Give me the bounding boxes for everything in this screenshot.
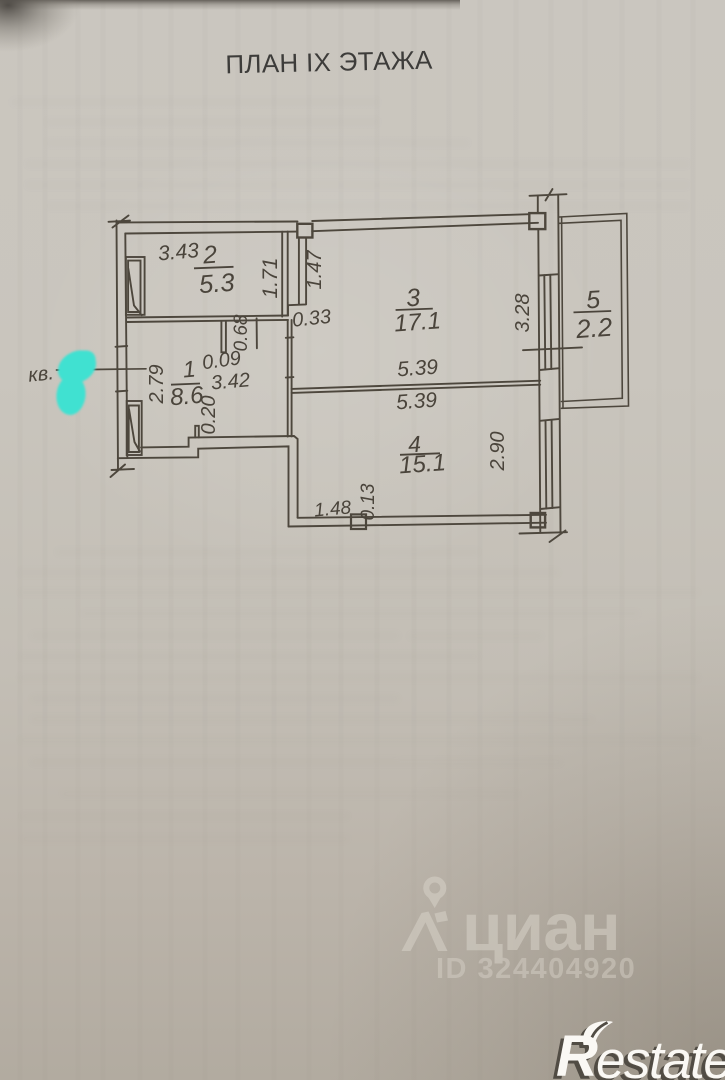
svg-text:1.47: 1.47: [304, 250, 326, 290]
svg-text:R: R: [556, 1024, 598, 1080]
svg-text:estate: estate: [596, 1031, 725, 1080]
svg-text:3.42: 3.42: [210, 369, 251, 394]
svg-text:кв.: кв.: [27, 362, 55, 387]
svg-text:2: 2: [201, 241, 218, 270]
svg-text:1: 1: [182, 355, 197, 382]
svg-text:0.33: 0.33: [291, 306, 332, 332]
svg-text:3.28: 3.28: [512, 294, 534, 333]
svg-text:1.71: 1.71: [259, 258, 282, 299]
svg-text:5.39: 5.39: [396, 356, 439, 382]
svg-text:3.43: 3.43: [157, 239, 200, 266]
svg-text:1.48: 1.48: [313, 497, 352, 521]
svg-text:2.90: 2.90: [487, 432, 509, 472]
svg-text:5.3: 5.3: [198, 269, 235, 299]
svg-text:ID 324404920: ID 324404920: [436, 953, 636, 985]
svg-text:2.79: 2.79: [146, 365, 168, 405]
svg-text:5: 5: [585, 286, 601, 315]
svg-text:17.1: 17.1: [393, 307, 441, 337]
svg-text:0.13: 0.13: [358, 483, 379, 520]
svg-text:5.39: 5.39: [395, 389, 438, 415]
svg-text:0.68: 0.68: [231, 314, 252, 351]
svg-text:15.1: 15.1: [398, 449, 446, 479]
svg-text:0.20: 0.20: [198, 396, 220, 435]
svg-text:ПЛАН IX ЭТАЖА: ПЛАН IX ЭТАЖА: [225, 45, 433, 80]
svg-text:2.2: 2.2: [574, 312, 614, 345]
